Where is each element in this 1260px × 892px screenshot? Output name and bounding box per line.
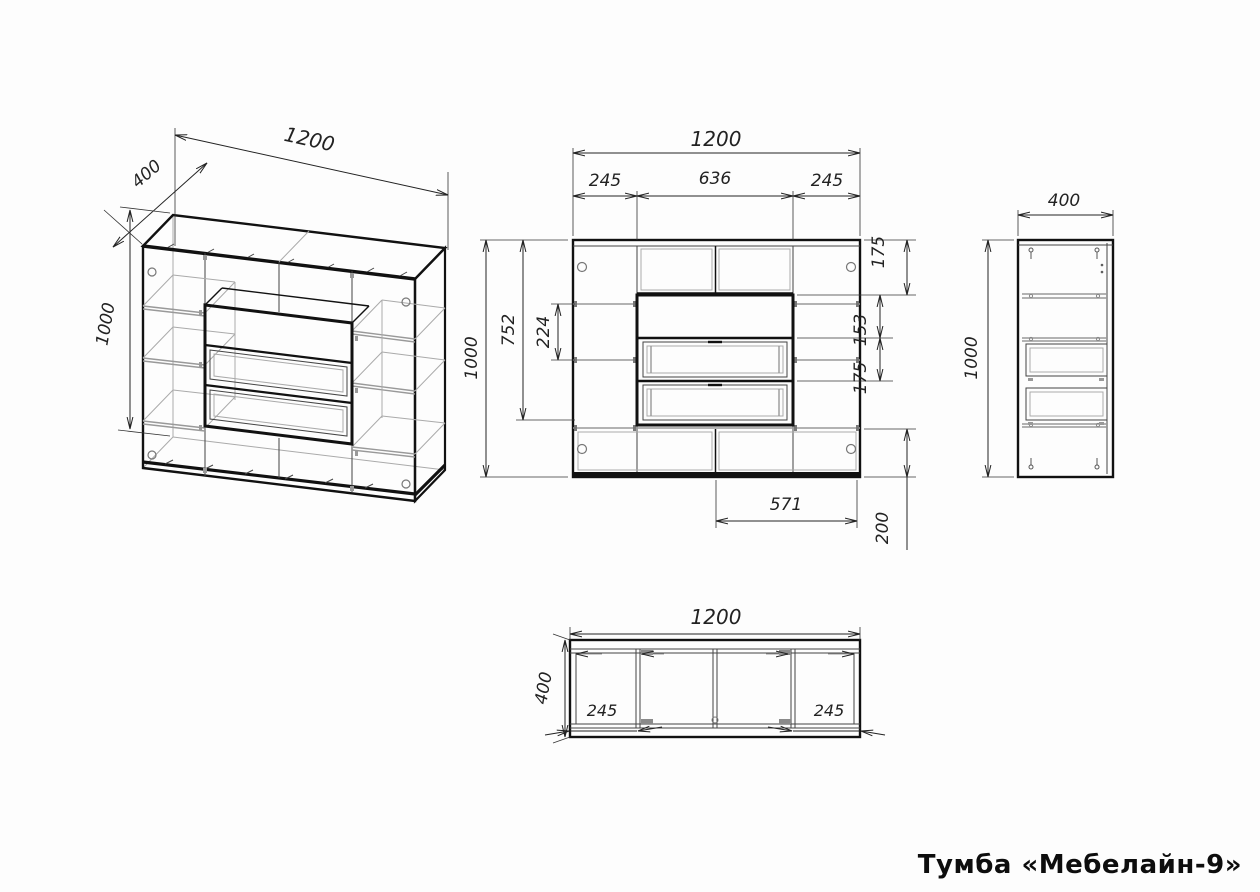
front-bottom-door-left [578, 432, 712, 470]
hinge-icon [578, 263, 587, 272]
front-shelf-spacing-dim: 224 [534, 316, 554, 348]
iso-hinge-icon [402, 298, 410, 306]
side-drawer-2 [1026, 388, 1107, 420]
side-drawer-1 [1026, 344, 1107, 376]
iso-hinge-icon [402, 480, 410, 488]
iso-depth-dim: 400 [128, 156, 166, 192]
front-plinth [573, 472, 860, 477]
front-drawer-1 [643, 342, 787, 377]
front-left-bay-dim: 245 [589, 171, 621, 191]
side-view: 400 1000 [962, 191, 1113, 477]
front-top-door-right [719, 249, 790, 290]
hinge-icon [847, 263, 856, 272]
iso-hinge-icon [148, 268, 156, 276]
side-height-dim: 1000 [962, 336, 982, 379]
side-depth-dim: 400 [1048, 191, 1080, 211]
side-shelves [1022, 294, 1107, 427]
front-view: 1200 245 636 245 1000 752 224 175 153 17… [462, 127, 916, 550]
front-overall-width-dim: 1200 [691, 127, 742, 151]
front-shelf-caps [574, 301, 859, 431]
front-niche [637, 295, 793, 425]
front-body [573, 240, 860, 477]
plan-divider-caps [641, 650, 791, 724]
front-bottom-section-dim: 200 [873, 512, 893, 544]
front-drawer-2 [643, 385, 787, 420]
iso-width-dim: 1200 [282, 122, 337, 156]
iso-niche [205, 305, 352, 444]
front-niche-opening-dim: 153 [851, 314, 871, 346]
side-connectors [1028, 378, 1104, 425]
hinge-icon [578, 445, 587, 454]
plan-view: 1200 400 245 245 [531, 605, 885, 743]
side-body [1018, 240, 1113, 477]
front-top-door-left [641, 249, 712, 290]
hinge-icon [847, 445, 856, 454]
front-bottom-door-right [719, 432, 856, 470]
isometric-view: 1200 400 1000 [92, 122, 448, 501]
plan-left-bay-dim: 245 [587, 701, 618, 720]
front-overall-height-dim: 1000 [462, 336, 482, 379]
front-top-section-dim: 175 [869, 236, 889, 268]
iso-hinge-icon [148, 451, 156, 459]
front-drawer-height-dim: 175 [851, 362, 871, 394]
drawing-sheet: 1200 400 1000 [0, 0, 1260, 892]
plan-body [570, 640, 860, 737]
blueprint-canvas: 1200 400 1000 [0, 0, 1260, 892]
front-center-bay-dim: 636 [699, 169, 732, 189]
front-inner-height-dim: 752 [499, 314, 519, 346]
plan-right-bay-dim: 245 [814, 701, 845, 720]
plan-dividers [636, 649, 795, 728]
drawing-title: Тумба «Мебелайн-9» [918, 850, 1242, 880]
side-screws [1029, 248, 1103, 469]
front-door-width-dim: 571 [770, 495, 802, 515]
side-shelf-pins [1029, 294, 1099, 426]
front-shelves [573, 304, 860, 428]
front-right-bay-dim: 245 [811, 171, 843, 191]
plan-depth-dim: 400 [531, 670, 556, 705]
iso-height-dim: 1000 [92, 301, 119, 347]
plan-width-dim: 1200 [691, 605, 742, 629]
